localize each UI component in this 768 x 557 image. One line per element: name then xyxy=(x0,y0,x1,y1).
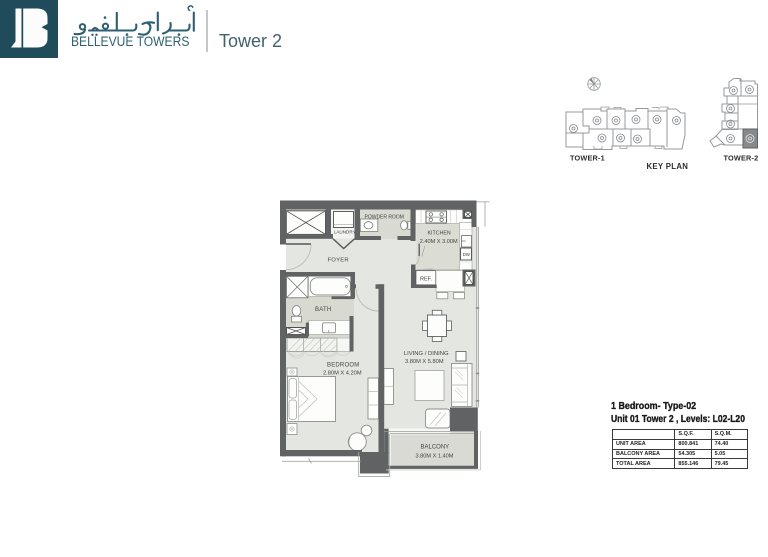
svg-text:3.80M X 5.80M: 3.80M X 5.80M xyxy=(405,359,444,365)
svg-text:POWDER ROOM: POWDER ROOM xyxy=(365,215,404,221)
svg-text:KITCHEN: KITCHEN xyxy=(428,231,451,237)
svg-text:LAUNDRY: LAUNDRY xyxy=(334,229,356,234)
svg-text:TOWER-1: TOWER-1 xyxy=(570,154,605,163)
svg-text:BATH: BATH xyxy=(315,307,331,313)
svg-text:FOYER: FOYER xyxy=(328,257,349,263)
svg-text:3.80M X 1.40M: 3.80M X 1.40M xyxy=(416,454,454,460)
svg-text:BEDROOM: BEDROOM xyxy=(327,362,359,368)
svg-text:REF.: REF. xyxy=(420,277,432,283)
svg-text:DW: DW xyxy=(463,252,471,257)
svg-text:2.40M X 3.00M: 2.40M X 3.00M xyxy=(420,239,458,245)
svg-text:BALCONY: BALCONY xyxy=(421,444,450,450)
svg-text:LIVING / DINING: LIVING / DINING xyxy=(404,351,449,357)
svg-text:TOWER-2: TOWER-2 xyxy=(724,154,759,163)
svg-text:KEY PLAN: KEY PLAN xyxy=(647,162,689,171)
svg-text:2.80M X 4.20M: 2.80M X 4.20M xyxy=(323,371,362,377)
